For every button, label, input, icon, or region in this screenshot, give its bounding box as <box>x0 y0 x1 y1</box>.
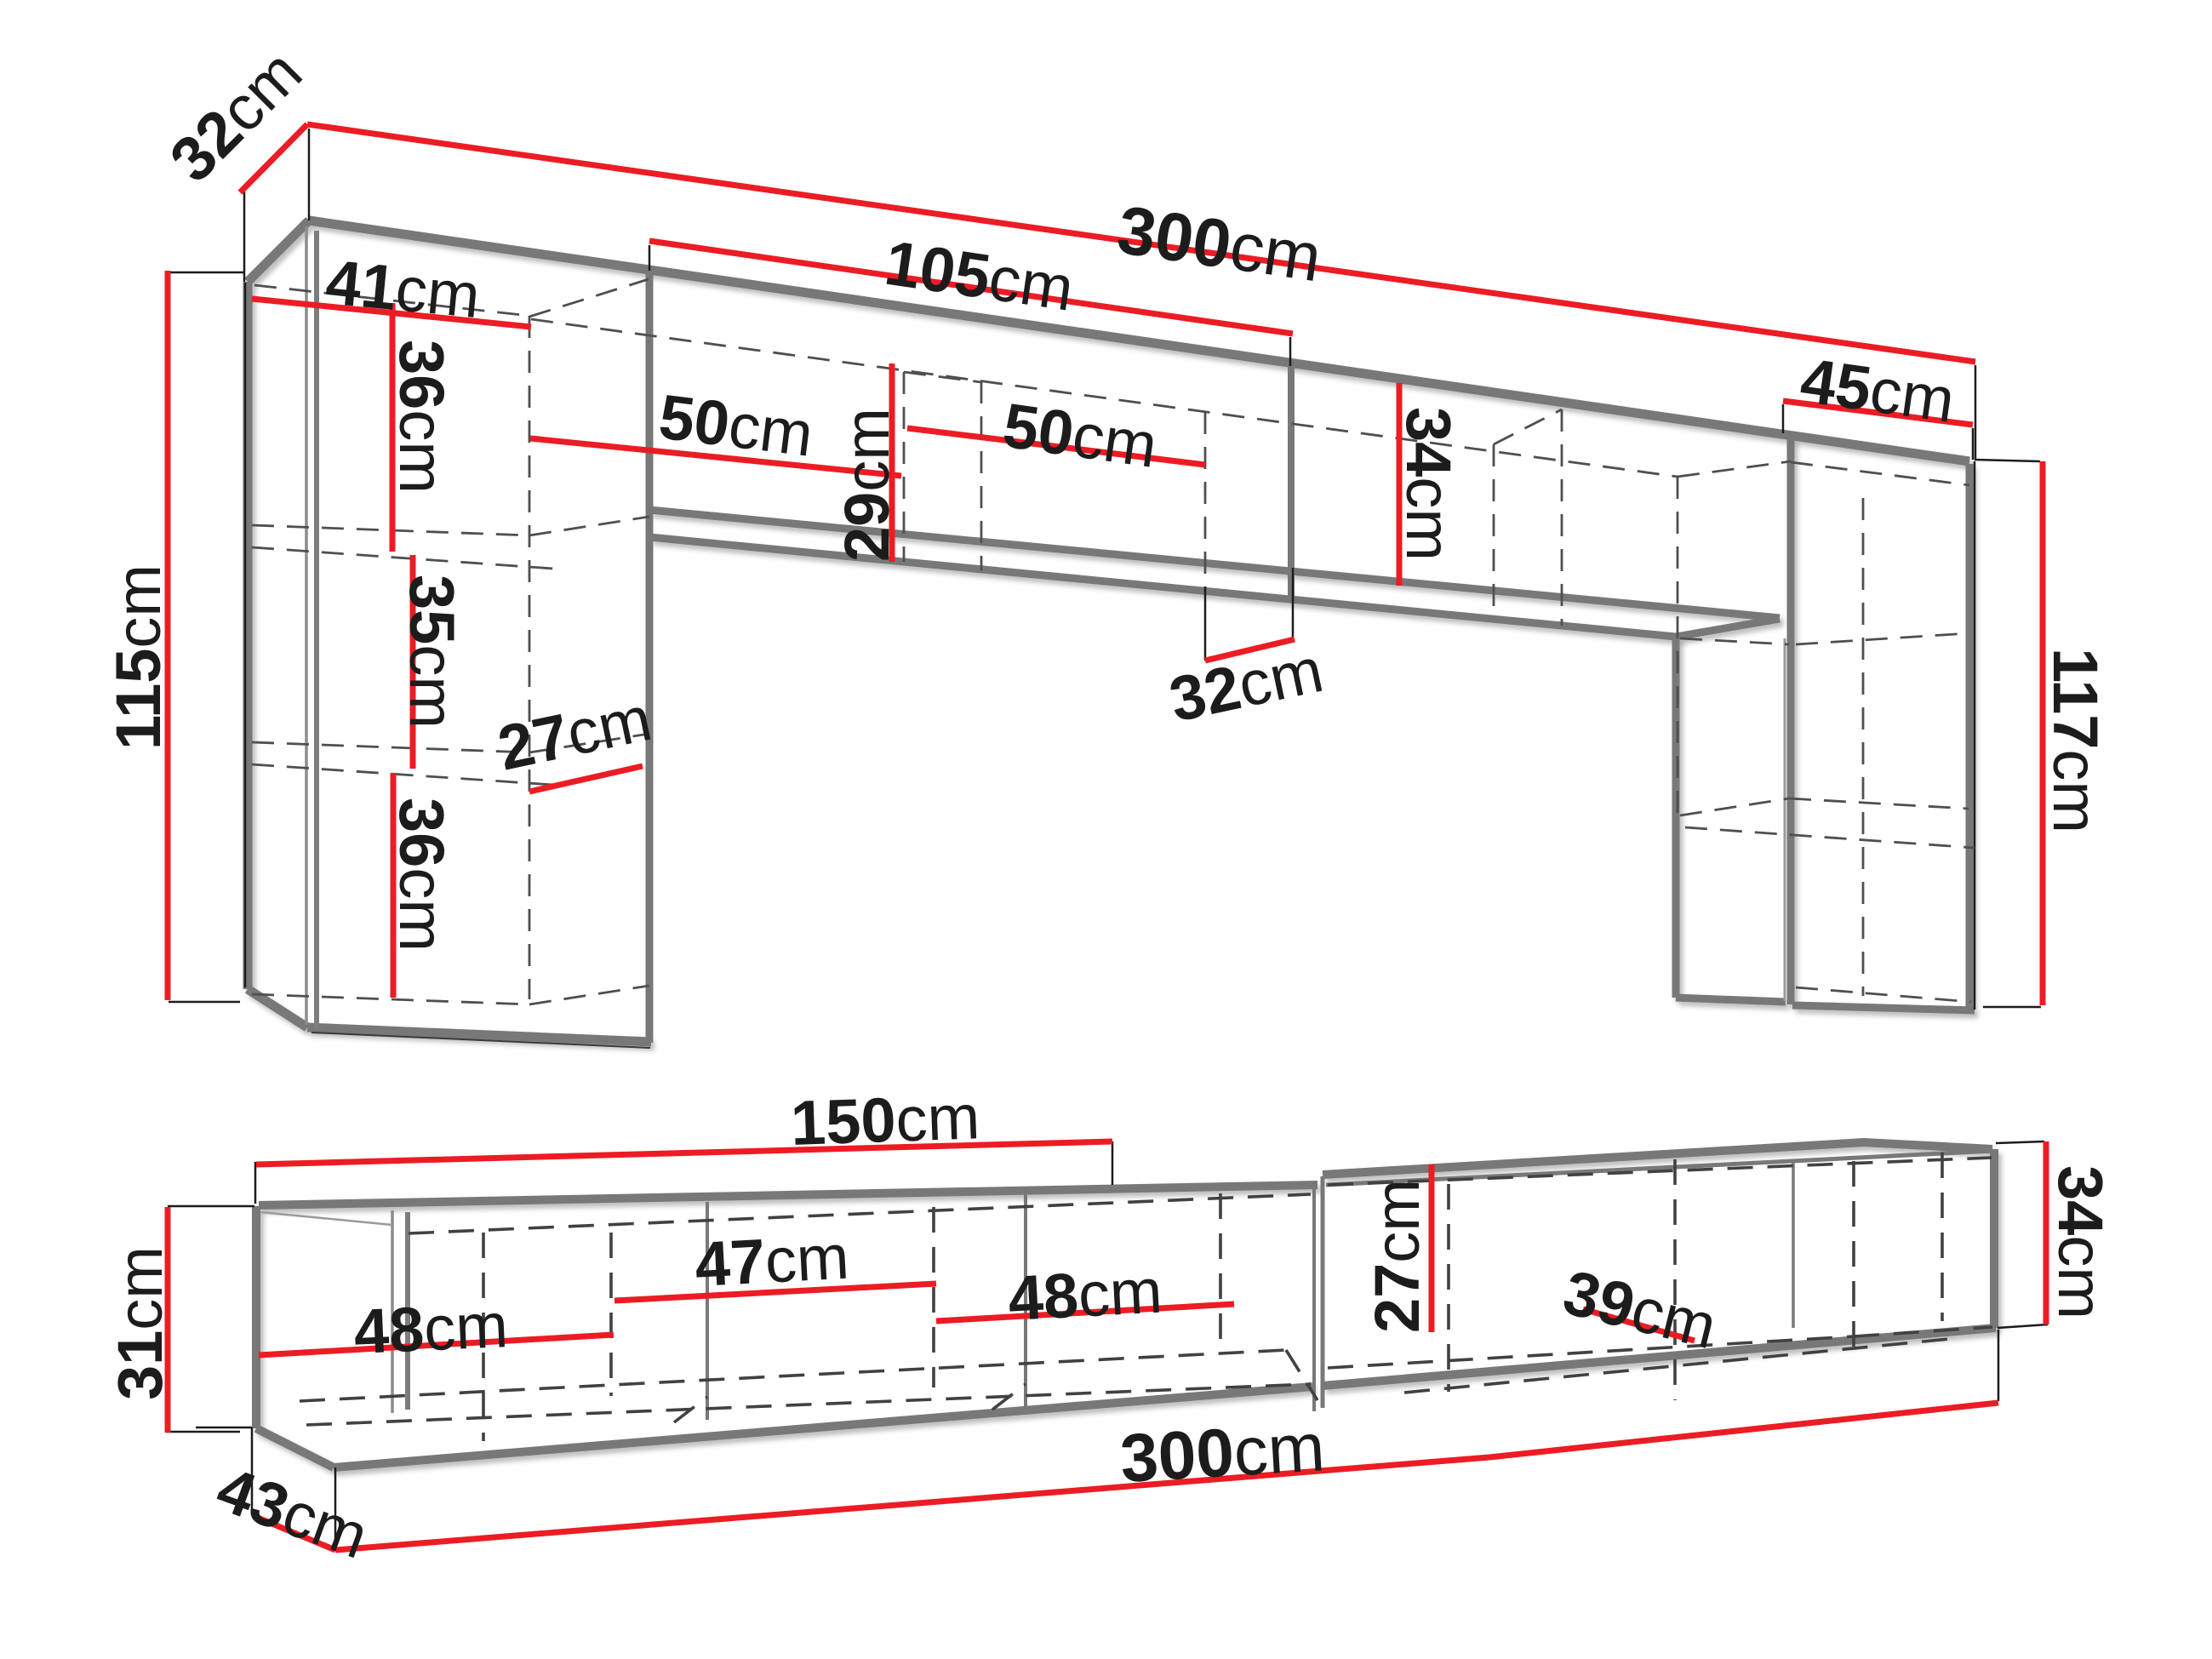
svg-text:150cm: 150cm <box>790 1081 981 1158</box>
svg-text:32cm: 32cm <box>1163 634 1329 735</box>
svg-text:36cm: 36cm <box>386 340 457 494</box>
svg-text:41cm: 41cm <box>323 246 483 331</box>
svg-text:47cm: 47cm <box>693 1221 850 1300</box>
svg-text:39cm: 39cm <box>1557 1256 1723 1362</box>
svg-text:31cm: 31cm <box>105 1246 175 1400</box>
svg-text:300cm: 300cm <box>1113 192 1326 296</box>
svg-text:36cm: 36cm <box>386 798 457 952</box>
svg-text:48cm: 48cm <box>352 1290 509 1367</box>
svg-text:300cm: 300cm <box>1118 1409 1327 1496</box>
svg-text:35cm: 35cm <box>397 575 467 729</box>
svg-text:43cm: 43cm <box>209 1453 377 1572</box>
svg-text:27cm: 27cm <box>1362 1179 1432 1333</box>
svg-text:48cm: 48cm <box>1006 1256 1163 1334</box>
svg-text:34cm: 34cm <box>1393 407 1464 561</box>
svg-text:29cm: 29cm <box>832 408 902 562</box>
svg-text:117cm: 117cm <box>2040 648 2111 833</box>
svg-text:34cm: 34cm <box>2045 1165 2116 1319</box>
svg-text:50cm: 50cm <box>655 380 817 469</box>
svg-text:32cm: 32cm <box>157 37 316 196</box>
svg-text:115cm: 115cm <box>103 564 174 750</box>
